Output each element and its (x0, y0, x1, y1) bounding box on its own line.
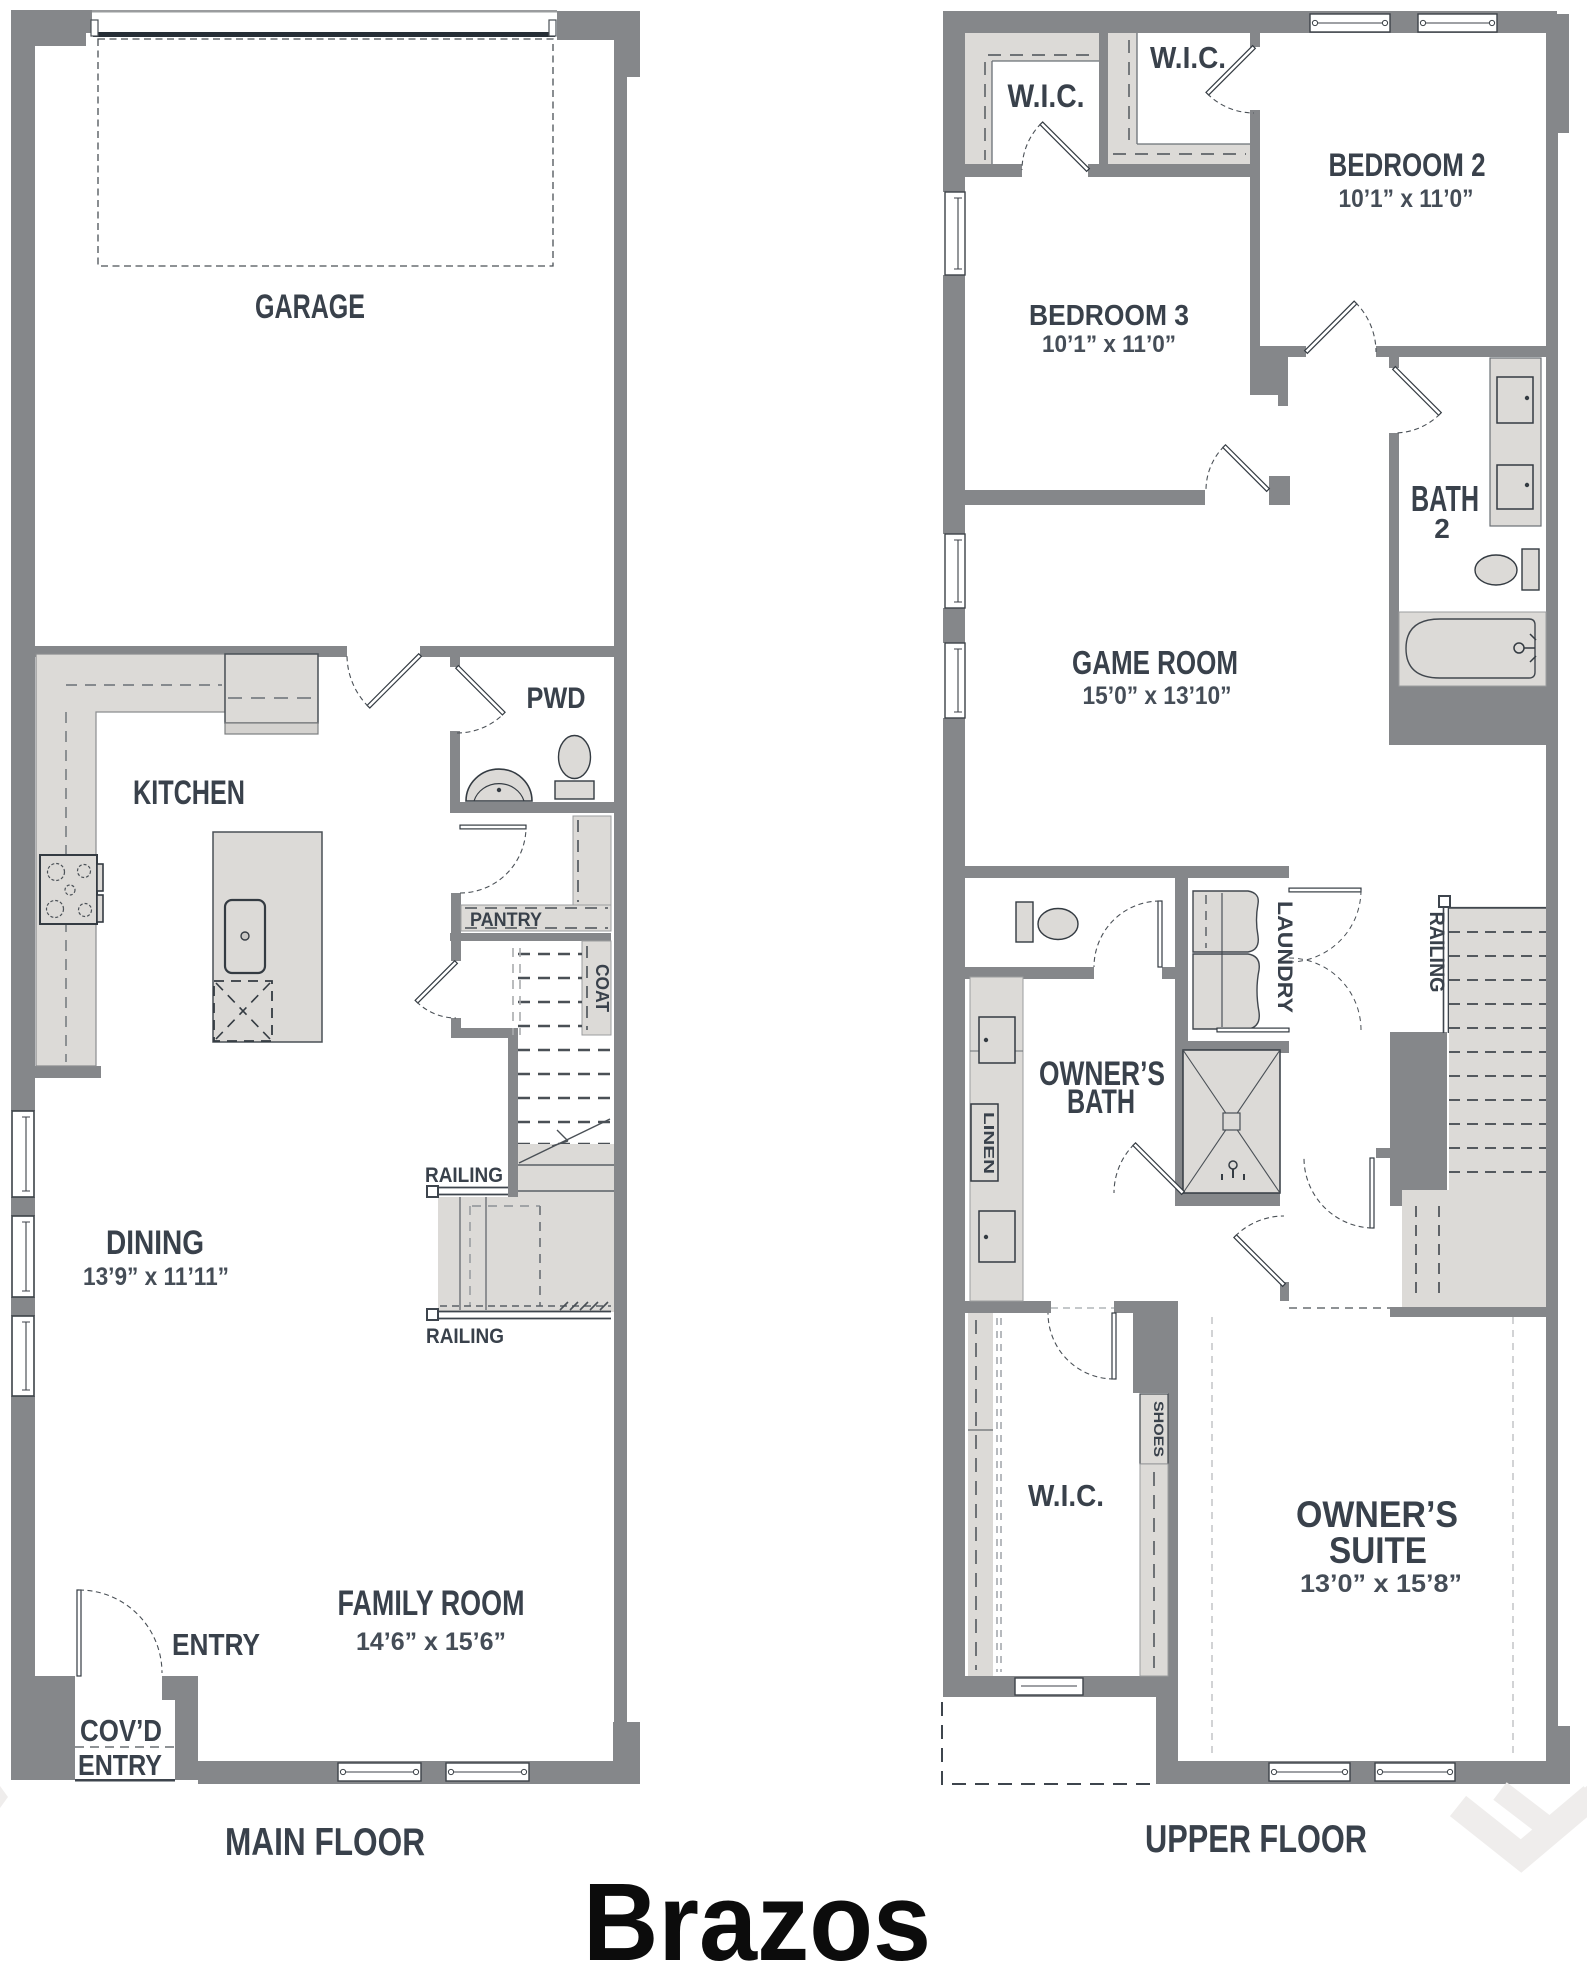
svg-text:GARAGE: GARAGE (255, 288, 365, 326)
svg-text:OWNER’S: OWNER’S (1296, 1494, 1458, 1535)
svg-text:COAT: COAT (592, 964, 612, 1012)
svg-text:13’9” x 11’11”: 13’9” x 11’11” (83, 1263, 229, 1291)
svg-text:Brazos: Brazos (583, 1861, 931, 1984)
svg-text:LINEN: LINEN (980, 1112, 997, 1174)
svg-text:PANTRY: PANTRY (470, 910, 542, 931)
svg-text:10’1” x 11’0”: 10’1” x 11’0” (1339, 185, 1474, 213)
svg-text:BEDROOM 3: BEDROOM 3 (1029, 300, 1189, 332)
svg-text:SUITE: SUITE (1329, 1530, 1427, 1571)
svg-text:KITCHEN: KITCHEN (133, 774, 245, 812)
svg-text:PWD: PWD (527, 682, 586, 715)
svg-text:RAILING: RAILING (426, 1325, 504, 1348)
svg-text:COV’D: COV’D (80, 1713, 162, 1748)
svg-text:2: 2 (1434, 513, 1450, 544)
svg-text:W.I.C.: W.I.C. (1028, 1478, 1104, 1513)
svg-text:LAUNDRY: LAUNDRY (1273, 901, 1296, 1013)
svg-text:W.I.C.: W.I.C. (1150, 40, 1226, 75)
svg-text:W.I.C.: W.I.C. (1008, 78, 1085, 114)
svg-text:SHOES: SHOES (1151, 1401, 1167, 1457)
svg-text:FAMILY ROOM: FAMILY ROOM (338, 1584, 525, 1623)
svg-text:BATH: BATH (1067, 1083, 1135, 1121)
svg-text:10’1” x 11’0”: 10’1” x 11’0” (1042, 331, 1176, 358)
svg-text:RAILING: RAILING (425, 1164, 503, 1187)
svg-text:13’0” x 15’8”: 13’0” x 15’8” (1300, 1570, 1462, 1598)
svg-text:MAIN FLOOR: MAIN FLOOR (225, 1821, 425, 1864)
svg-text:ENTRY: ENTRY (78, 1750, 162, 1782)
svg-text:UPPER FLOOR: UPPER FLOOR (1145, 1818, 1367, 1861)
svg-text:ENTRY: ENTRY (172, 1627, 260, 1662)
svg-text:BEDROOM 2: BEDROOM 2 (1329, 147, 1486, 183)
svg-text:14’6” x 15’6”: 14’6” x 15’6” (356, 1628, 506, 1656)
svg-text:GAME ROOM: GAME ROOM (1072, 644, 1238, 681)
svg-text:DINING: DINING (106, 1224, 204, 1262)
svg-text:RAILING: RAILING (1425, 912, 1448, 993)
svg-text:15’0” x 13’10”: 15’0” x 13’10” (1083, 682, 1232, 710)
